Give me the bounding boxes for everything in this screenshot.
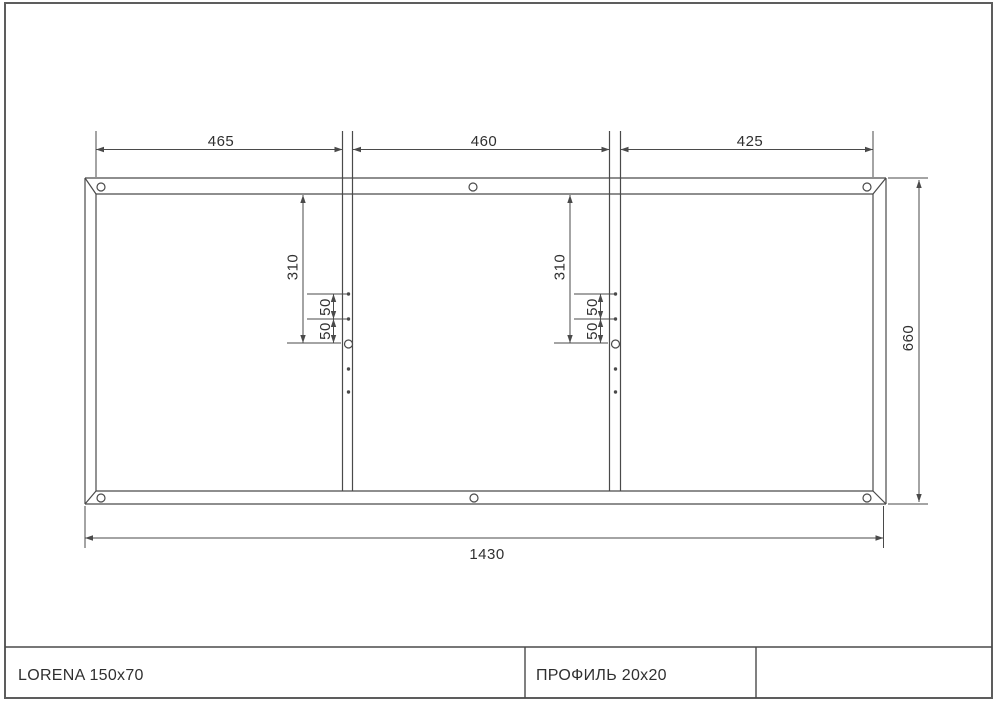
- arrowhead: [85, 535, 93, 540]
- dim-label-425: 425: [737, 133, 764, 150]
- hole-left-member-main: [345, 340, 353, 348]
- title-block: LORENA 150x70 ПРОФИЛЬ 20x20: [5, 647, 992, 698]
- arrowhead: [300, 335, 305, 343]
- dim-label-50: 50: [584, 322, 601, 340]
- hole-top-center: [469, 183, 477, 191]
- pilot-hole: [347, 390, 350, 393]
- cross-members: [343, 131, 621, 491]
- arrowhead: [916, 494, 921, 502]
- dim-label-310-left: 310: [285, 254, 302, 281]
- dim-label-50: 50: [317, 322, 334, 340]
- frame-outline: [85, 178, 886, 504]
- arrowhead: [353, 147, 361, 152]
- sheet-border: [5, 3, 992, 698]
- dim-left-member-holes: 310 50 50: [285, 195, 351, 343]
- dim-top-chain: 465 460 425: [96, 131, 873, 177]
- dim-overall-height: 660: [888, 178, 928, 504]
- arrowhead: [567, 195, 572, 203]
- arrowhead: [96, 147, 104, 152]
- miter-bottom-left: [85, 491, 96, 504]
- dim-label-310-right: 310: [552, 254, 569, 281]
- hole-top-right: [863, 183, 871, 191]
- miter-bottom-right: [873, 491, 886, 504]
- dim-label-465: 465: [208, 133, 235, 150]
- miter-top-left: [85, 178, 96, 194]
- pilot-hole: [614, 367, 617, 370]
- hole-top-left: [97, 183, 105, 191]
- holes: [97, 183, 871, 502]
- arrowhead: [300, 195, 305, 203]
- arrowhead: [865, 147, 873, 152]
- dim-label-50: 50: [584, 298, 601, 316]
- pilot-hole: [347, 367, 350, 370]
- dim-label-50: 50: [317, 298, 334, 316]
- pilot-hole: [614, 390, 617, 393]
- dim-right-member-holes: 310 50 50: [552, 195, 618, 343]
- arrowhead: [335, 147, 343, 152]
- dim-label-460: 460: [471, 133, 498, 150]
- drawing-canvas: 465 460 425 310 50 50 310 50 50: [0, 0, 1000, 709]
- arrowhead: [602, 147, 610, 152]
- title-block-model: LORENA 150x70: [18, 667, 144, 684]
- arrowhead: [876, 535, 884, 540]
- miter-top-right: [873, 178, 886, 194]
- arrowhead: [567, 335, 572, 343]
- hole-right-member-main: [612, 340, 620, 348]
- hole-bottom-right: [863, 494, 871, 502]
- drawing-sheet: 465 460 425 310 50 50 310 50 50: [0, 0, 1000, 709]
- hole-bottom-left: [97, 494, 105, 502]
- dim-label-660: 660: [900, 325, 917, 352]
- hole-bottom-center: [470, 494, 478, 502]
- title-block-profile: ПРОФИЛЬ 20x20: [536, 667, 667, 684]
- dim-label-1430: 1430: [469, 546, 504, 563]
- arrowhead: [916, 180, 921, 188]
- arrowhead: [621, 147, 629, 152]
- dim-overall-width: 1430: [85, 506, 884, 563]
